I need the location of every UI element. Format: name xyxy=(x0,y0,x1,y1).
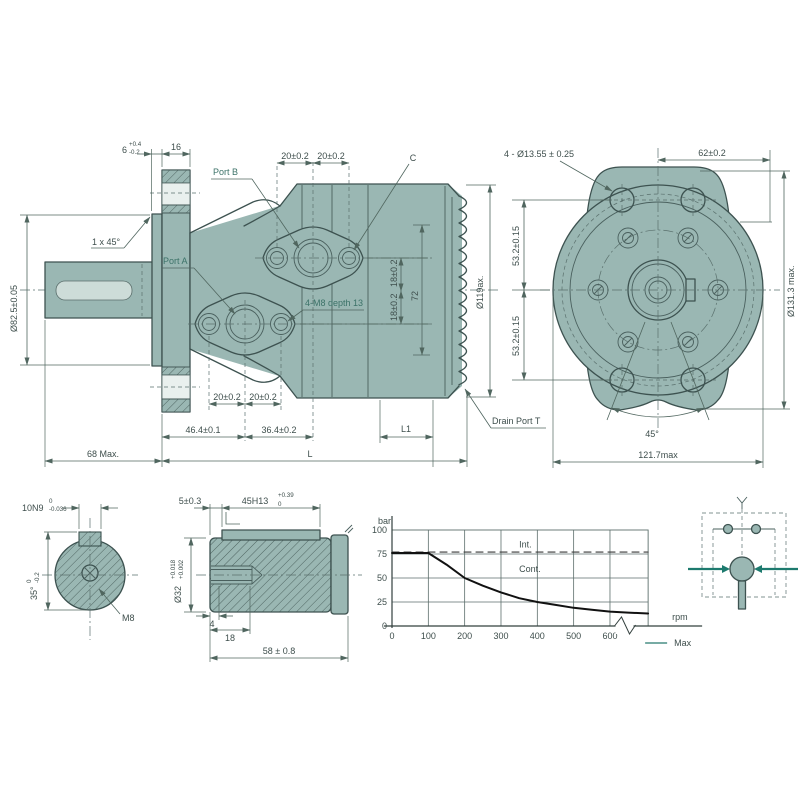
motor-housing xyxy=(190,184,467,398)
axis-symbol xyxy=(737,497,747,509)
dim-label: 68 Max. xyxy=(87,449,119,459)
dim-label: 62±0.2 xyxy=(698,148,725,158)
chart-annotation: Cont. xyxy=(519,564,541,574)
dim-10n9: 10N9 0 -0.036 xyxy=(22,498,118,529)
dim-label: 20±0.2 xyxy=(249,392,276,402)
tolerance: -0.036 xyxy=(49,506,67,513)
dim-label: 121.7max xyxy=(638,450,678,460)
dim-label: 18±0.2 xyxy=(389,260,399,287)
drawing-canvas: 6 +0.4 -0.2 16 20±0.2 20±0.2 C Port B Po… xyxy=(0,0,800,800)
dim-label: 53.2±0.15 xyxy=(511,316,521,356)
port-b-label: Port B xyxy=(213,167,238,177)
x-axis-label: rpm xyxy=(672,612,688,622)
dim-label: 18 xyxy=(225,633,235,643)
dim-label: 35° xyxy=(29,586,39,600)
tolerance: 0 xyxy=(278,501,282,508)
m8-label: M8 xyxy=(122,613,135,623)
drive-shaft xyxy=(45,262,153,318)
dim-46-36: 46.4±0.1 36.4±0.2 xyxy=(162,414,313,467)
pivot-left xyxy=(724,525,733,534)
x-tick-label: 100 xyxy=(421,631,436,641)
dim-label: Ø82.5±0.05 xyxy=(9,285,19,332)
tolerance: +0.39 xyxy=(278,492,294,499)
y-tick-label: 0 xyxy=(382,621,387,631)
y-axis-label: bar xyxy=(378,516,391,526)
x-tick-label: 300 xyxy=(493,631,508,641)
y-tick-label: 100 xyxy=(372,525,387,535)
dim-label: 45° xyxy=(645,429,659,439)
stem xyxy=(739,581,746,609)
x-tick-label: 200 xyxy=(457,631,472,641)
pivot-right xyxy=(752,525,761,534)
holes-label: 4 - Ø13.55 ± 0.25 xyxy=(504,149,574,159)
tolerance: -0.2 xyxy=(34,572,41,583)
x-tick-label: 400 xyxy=(530,631,545,641)
dim-label: Ø131.3 max. xyxy=(786,265,796,317)
tolerance: -0.2 xyxy=(129,149,140,156)
tolerance: +0.4 xyxy=(129,141,142,148)
mounting-schematic xyxy=(688,497,798,609)
chart-annotation: Int. xyxy=(519,539,532,549)
dim-label: 20±0.2 xyxy=(213,392,240,402)
pressure-chart: 02550751000100200300400500600barrpmInt.C… xyxy=(372,516,702,648)
dim-label: 58 ± 0.8 xyxy=(263,646,295,656)
dim-label: 53.2±0.15 xyxy=(511,226,521,266)
technical-drawing: 6 +0.4 -0.2 16 20±0.2 20±0.2 C Port B Po… xyxy=(0,0,800,800)
dim-label: L xyxy=(307,449,312,459)
shaft-side-view: 5±0.3 45H13 +0.39 0 Ø32 +0.018 +0.002 4 xyxy=(170,492,362,662)
side-view: 6 +0.4 -0.2 16 20±0.2 20±0.2 C Port B Po… xyxy=(9,141,546,467)
y-tick-label: 25 xyxy=(377,597,387,607)
collar xyxy=(331,535,348,614)
dim-label: 45H13 xyxy=(242,496,269,506)
dim-label: 5±0.3 xyxy=(179,496,201,506)
dim-label: 16 xyxy=(171,142,181,152)
dim-label: 4 xyxy=(209,619,214,629)
m8-depth-label: 4-M8 depth 13 xyxy=(305,298,363,308)
y-tick-label: 75 xyxy=(377,549,387,559)
x-tick-label: 500 xyxy=(566,631,581,641)
x-tick-label: 600 xyxy=(602,631,617,641)
port-a-label: Port A xyxy=(163,256,188,266)
tolerance: +0.018 xyxy=(170,559,177,579)
dim-label: 20±0.2 xyxy=(281,151,308,161)
dim-label: 46.4±0.1 xyxy=(186,425,221,435)
dim-l1: L1 xyxy=(380,400,433,467)
x-tick-label: 0 xyxy=(389,631,394,641)
dim-label: Ø119ax. xyxy=(475,276,485,309)
callout-chamfer: 1 x 45° xyxy=(91,217,150,248)
drain-label: Drain Port T xyxy=(492,416,541,426)
chamfer-label: 1 x 45° xyxy=(92,237,121,247)
tolerance: +0.002 xyxy=(178,559,185,579)
dim-label: 20±0.2 xyxy=(317,151,344,161)
dim-5-45h13: 5±0.3 45H13 +0.39 0 xyxy=(179,492,320,535)
shaft-section-view: 10N9 0 -0.036 35° 0 -0.2 M8 xyxy=(22,498,138,640)
dim-label: 10N9 xyxy=(22,503,44,513)
tolerance: 0 xyxy=(26,579,33,583)
keyway-slot xyxy=(222,530,320,540)
y-tick-label: 50 xyxy=(377,573,387,583)
legend-label: Max xyxy=(674,638,692,648)
dim-label: 6 xyxy=(122,145,127,155)
front-view: 45° 62±0.2 4 - Ø13.55 ± 0.25 53.2±0.15 5… xyxy=(504,148,796,468)
tolerance: 0 xyxy=(49,498,53,505)
dim-label: Ø32 xyxy=(173,586,183,603)
dim-label: L1 xyxy=(401,424,411,434)
callout-label: C xyxy=(410,153,417,163)
shaft-end xyxy=(730,557,754,581)
shaft-keyway xyxy=(56,281,132,300)
dim-20-top: 20±0.2 20±0.2 xyxy=(277,151,349,163)
dim-label: 72 xyxy=(410,291,420,301)
callout-drain: Drain Port T xyxy=(465,389,546,428)
dim-label: 18±0.2 xyxy=(389,294,399,321)
dim-label: 36.4±0.2 xyxy=(262,425,297,435)
